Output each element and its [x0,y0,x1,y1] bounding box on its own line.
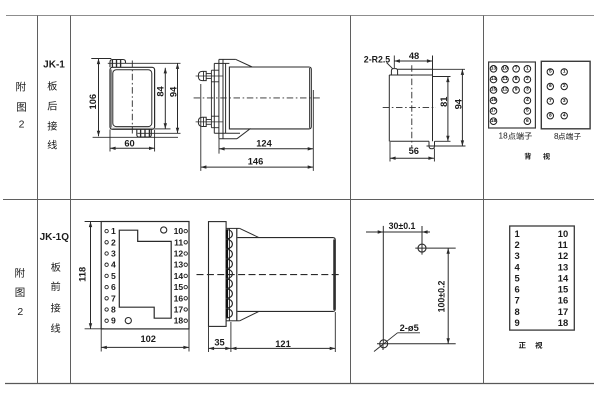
svg-text:2: 2 [515,239,520,250]
svg-text:7: 7 [515,66,518,72]
svg-text:11: 11 [174,237,183,247]
svg-text:35: 35 [214,338,224,348]
svg-text:81: 81 [439,97,449,107]
svg-text:1: 1 [563,69,566,75]
svg-text:8: 8 [111,305,116,315]
svg-text:3: 3 [515,250,520,261]
svg-text:1: 1 [526,66,529,72]
svg-text:4: 4 [111,260,116,270]
svg-text:18: 18 [174,316,184,326]
svg-text:18: 18 [491,118,497,124]
svg-text:7: 7 [111,293,116,303]
svg-text:16: 16 [558,295,568,306]
svg-text:84: 84 [155,86,165,97]
svg-text:48: 48 [409,51,419,61]
svg-text:8: 8 [515,76,518,82]
svg-text:4: 4 [563,112,566,118]
svg-text:5: 5 [526,108,529,114]
svg-text:2-ø5: 2-ø5 [400,323,419,333]
svg-text:2: 2 [563,83,566,89]
svg-text:121: 121 [275,339,291,349]
svg-text:11: 11 [502,76,507,82]
svg-text:94: 94 [169,86,179,97]
svg-text:124: 124 [256,138,272,148]
svg-text:12: 12 [558,250,568,261]
svg-text:7: 7 [515,295,520,306]
svg-text:2: 2 [17,306,23,318]
svg-text:12: 12 [174,249,184,259]
svg-text:102: 102 [140,334,156,344]
svg-text:JK-1: JK-1 [43,60,65,71]
svg-text:9: 9 [111,316,116,326]
svg-text:118: 118 [78,267,88,282]
svg-text:14: 14 [491,76,497,82]
svg-text:5: 5 [549,69,552,75]
svg-text:13: 13 [174,260,184,270]
svg-text:4: 4 [526,97,529,103]
svg-text:8: 8 [554,132,559,141]
svg-text:16: 16 [491,97,497,103]
svg-text:30±0.1: 30±0.1 [389,221,416,231]
svg-text:18: 18 [558,317,568,328]
svg-text:94: 94 [454,98,464,109]
svg-text:1: 1 [111,226,116,236]
svg-text:7: 7 [549,98,552,104]
svg-text:17: 17 [491,108,497,114]
svg-text:2: 2 [19,119,25,131]
svg-text:18: 18 [499,132,509,141]
svg-text:2: 2 [111,237,116,247]
svg-text:8: 8 [515,306,520,317]
svg-text:60: 60 [124,139,134,149]
svg-text:6: 6 [549,83,552,89]
svg-text:4: 4 [515,261,521,272]
svg-text:10: 10 [174,226,184,236]
svg-text:9: 9 [515,317,520,328]
svg-text:3: 3 [563,98,566,104]
svg-text:17: 17 [174,305,184,315]
svg-text:3: 3 [111,249,116,259]
svg-text:14: 14 [558,272,569,283]
svg-text:100±0.2: 100±0.2 [437,281,447,313]
svg-text:106: 106 [88,94,98,110]
svg-text:1: 1 [515,228,520,239]
svg-text:12: 12 [502,87,508,93]
svg-text:14: 14 [174,271,184,281]
svg-text:8: 8 [549,112,552,118]
svg-text:13: 13 [558,261,568,272]
svg-text:6: 6 [526,118,529,124]
svg-text:2: 2 [526,76,529,82]
svg-text:3: 3 [526,87,529,93]
svg-text:10: 10 [558,228,568,239]
svg-text:16: 16 [174,293,184,303]
svg-text:5: 5 [515,272,520,283]
svg-text:6: 6 [515,284,520,295]
svg-text:13: 13 [491,66,497,72]
svg-text:5: 5 [111,271,116,281]
svg-text:JK-1Q: JK-1Q [40,232,70,243]
svg-text:15: 15 [491,87,497,93]
svg-text:10: 10 [502,66,508,72]
svg-text:6: 6 [111,282,116,292]
svg-text:146: 146 [248,157,264,167]
svg-text:15: 15 [558,284,568,295]
svg-text:15: 15 [174,282,184,292]
svg-text:56: 56 [409,146,419,156]
svg-text:9: 9 [515,87,518,93]
svg-text:11: 11 [558,239,568,250]
svg-text:17: 17 [558,306,568,317]
